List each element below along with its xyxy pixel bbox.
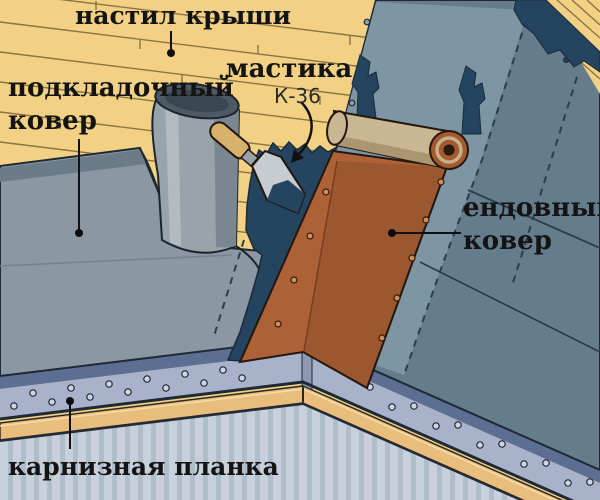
label-roof-deck: настил крыши	[75, 1, 291, 30]
label-underlayment-line2: ковер	[8, 105, 234, 138]
label-underlayment-line1: подкладочный	[8, 72, 234, 105]
carpet-roll-core	[444, 145, 454, 155]
label-valley-carpet: ендовный ковер	[463, 192, 600, 258]
label-underlayment-carpet: подкладочный ковер	[8, 72, 234, 138]
label-valley-line2: ковер	[463, 225, 600, 258]
roof-valley-diagram: настил крыши подкладочный ковер мастика …	[0, 0, 600, 500]
label-eaves-strip: карнизная планка	[8, 452, 279, 481]
label-mastic-grade: К-36	[274, 84, 321, 108]
label-valley-line1: ендовный	[463, 192, 600, 225]
label-mastic: мастика	[226, 54, 352, 84]
